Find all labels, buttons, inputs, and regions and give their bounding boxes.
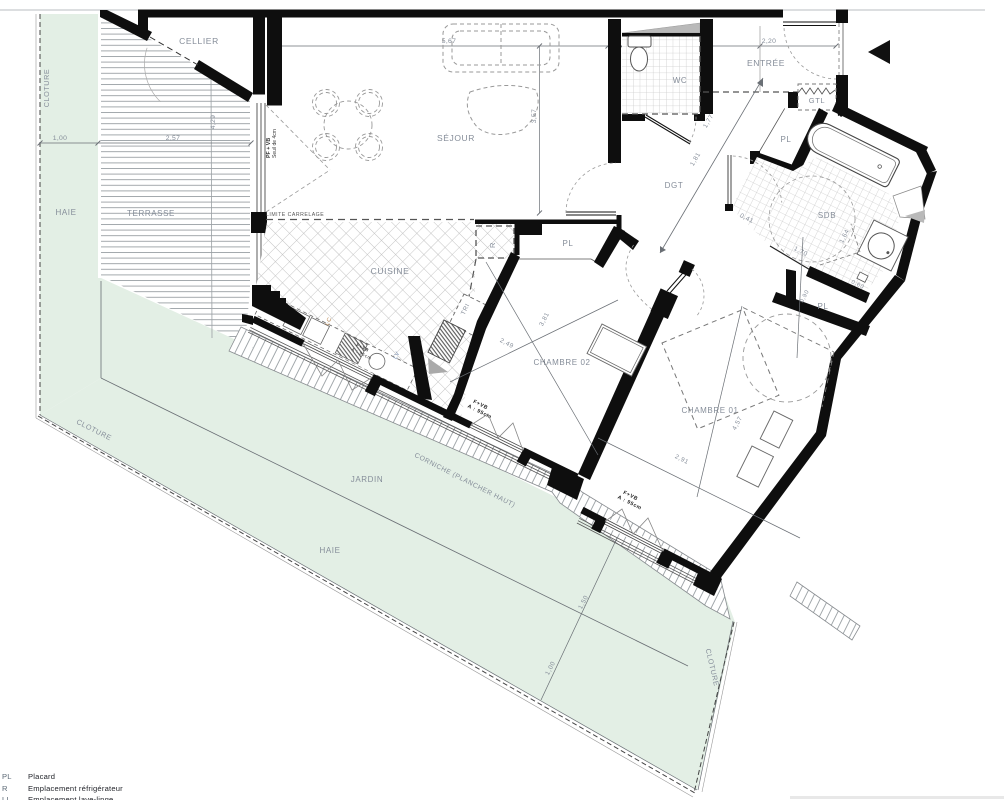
svg-text:PL: PL	[781, 135, 792, 144]
svg-text:Seuil de 4cm: Seuil de 4cm	[272, 129, 278, 158]
svg-text:PL: PL	[563, 239, 574, 248]
svg-text:SÉJOUR: SÉJOUR	[437, 133, 475, 143]
svg-text:HAIE: HAIE	[55, 208, 76, 217]
svg-text:4,29: 4,29	[210, 115, 217, 129]
svg-text:LL: LL	[2, 795, 11, 800]
svg-text:R: R	[2, 784, 8, 793]
svg-text:Emplacement lave-linge: Emplacement lave-linge	[28, 795, 113, 800]
svg-text:1,00: 1,00	[53, 135, 67, 142]
svg-text:CHAMBRE 02: CHAMBRE 02	[533, 358, 590, 367]
svg-text:WC: WC	[673, 76, 688, 85]
svg-text:LIMITE CARRELAGE: LIMITE CARRELAGE	[266, 212, 324, 218]
svg-text:Emplacement réfrigérateur: Emplacement réfrigérateur	[28, 784, 123, 793]
svg-text:Placard: Placard	[28, 772, 55, 781]
svg-text:JARDIN: JARDIN	[351, 475, 384, 484]
svg-text:CELLIER: CELLIER	[179, 36, 219, 46]
svg-text:PL: PL	[818, 302, 829, 311]
svg-text:R: R	[488, 242, 497, 248]
svg-text:CUISINE: CUISINE	[371, 266, 410, 276]
svg-text:CLOTURE: CLOTURE	[42, 69, 51, 108]
svg-text:DGT: DGT	[665, 181, 684, 190]
svg-text:ENTRÉE: ENTRÉE	[747, 58, 785, 68]
svg-text:TERRASSE: TERRASSE	[127, 209, 175, 218]
svg-text:SDB: SDB	[818, 211, 836, 220]
svg-text:PL: PL	[2, 772, 12, 781]
svg-text:GTL: GTL	[809, 96, 825, 105]
svg-text:2,57: 2,57	[166, 135, 180, 142]
svg-text:2,20: 2,20	[762, 38, 776, 45]
svg-text:5,67: 5,67	[442, 38, 456, 45]
svg-text:HAIE: HAIE	[319, 546, 340, 555]
